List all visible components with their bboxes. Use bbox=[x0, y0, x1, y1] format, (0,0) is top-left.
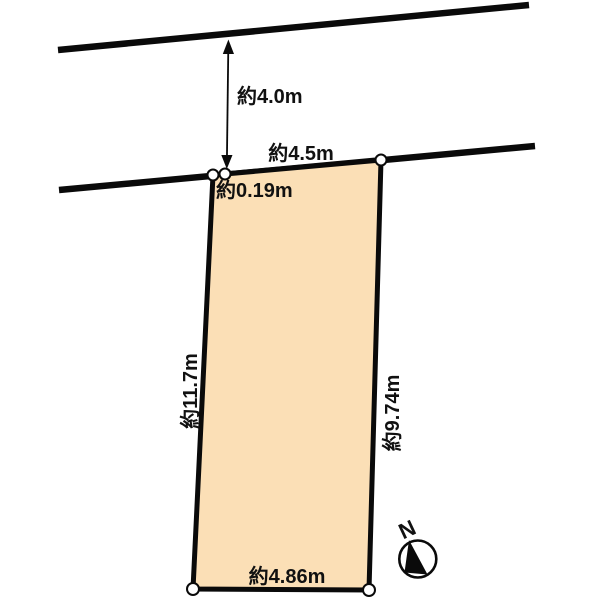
boundary-point-marker bbox=[363, 584, 375, 596]
boundary-point-marker bbox=[187, 583, 199, 595]
road-width-label: 約4.0m bbox=[237, 84, 303, 108]
left-side-length-label: 約11.7m bbox=[178, 353, 202, 429]
bottom-side-length-label: 約4.86m bbox=[249, 564, 326, 588]
parcel-shape bbox=[193, 160, 381, 590]
boundary-point-marker bbox=[376, 155, 387, 166]
frontage-length-label: 約4.5m bbox=[268, 141, 334, 165]
corner-offset-label: 約0.19m bbox=[216, 178, 293, 202]
boundary-point-marker bbox=[208, 170, 219, 181]
right-side-length-label: 約9.74m bbox=[380, 375, 404, 452]
plot-diagram: 約4.0m 約4.5m 約0.19m 約11.7m 約9.74m 約4.86m … bbox=[0, 0, 600, 600]
boundary-point-marker bbox=[220, 169, 231, 180]
plot-diagram-canvas: 約4.0m 約4.5m 約0.19m 約11.7m 約9.74m 約4.86m … bbox=[0, 0, 600, 600]
